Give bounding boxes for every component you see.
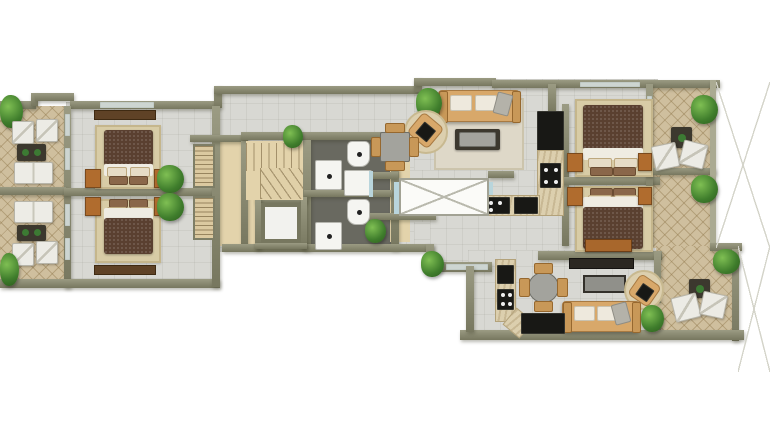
bed-bedroomC [583,105,643,177]
table-balcony-left-upper [17,144,46,161]
plant-balcony-right-2 [691,175,718,203]
stove-kitchen-bottom [497,289,514,310]
wall-closet-top [190,135,248,142]
pillow [590,167,613,176]
duvet [104,130,153,166]
oven-kitchen-bottom [497,265,514,284]
dining-chair [409,137,419,157]
stove-kitchen-top [540,163,561,188]
sofa-bottom [562,301,640,332]
wall-right-top-a [414,78,496,86]
sink-drain [327,174,332,179]
window-bedroomA [100,102,154,108]
fridge-kitchen-top [537,111,564,152]
burner [544,180,548,184]
bed-bedroomB [104,198,153,254]
plant-balcony-left-bottom [0,253,19,286]
sink-bath-top [315,160,342,190]
burner [544,168,548,172]
wall-kitchen-stub [548,84,556,114]
wall-bottom-apartment-left [466,266,474,332]
wall-left-bottom [0,279,220,288]
dining-chair [534,301,553,312]
plant-core [283,125,303,148]
nightstand [638,187,652,205]
plant-bath-corner [365,219,386,243]
nightstand [567,153,583,172]
sofa-cushion [450,95,472,111]
counter-kitchen-bottom-black [521,313,565,334]
chair-balcony-left [36,119,58,142]
burner [508,302,512,306]
burner [501,302,505,306]
duvet [583,105,643,150]
pillow [109,176,128,185]
sink-bath-bottom [315,222,342,250]
table-balcony-left-lower [17,225,46,241]
chair-balcony-right [699,291,728,320]
nightstand [638,153,652,171]
wall-core-top [214,86,420,94]
open-area-x-lower [738,246,770,372]
lounger-balcony-left [14,162,53,184]
duvet [104,218,153,254]
toilet-bath-bottom [347,199,370,225]
sofa-cushion [574,306,595,321]
sofa-living-top [438,90,520,122]
wall-shelf-bedroomB [94,265,156,275]
window-balcony-1 [65,114,70,136]
plant-bedroomB [157,193,184,221]
chair-balcony-left [12,121,34,144]
sofa-throw [611,301,632,325]
burner [554,168,558,172]
dining-set-top [371,123,419,171]
bed-bedroomA [104,130,153,186]
sofa-arm [632,302,641,333]
dining-chair [557,278,568,297]
appliance-kitchen-top [514,197,538,214]
elevator [261,203,301,243]
wardrobe-bedroomA [193,144,215,188]
light-well-void [399,178,489,216]
dining-chair [519,278,530,297]
tv-table-bottom [583,275,626,293]
burner [508,293,512,297]
dining-chair [371,137,381,157]
dining-chair [385,123,405,133]
lounger-balcony-left [14,201,53,223]
cup [34,229,41,236]
plant-south-corridor [421,251,444,277]
chair-balcony-right [651,142,681,172]
wall-shelf-bedroomA [94,110,156,120]
burner [489,208,493,212]
dining-chair [534,263,553,274]
wall-bedrooms-right-divider [550,177,660,185]
nightstand [567,187,583,206]
open-area-x-upper [716,82,770,248]
window-balcony-2 [65,148,70,170]
window-balcony-3 [65,204,70,226]
shower-bath-top [344,170,372,196]
nightstand [85,197,101,216]
sink-drain [327,234,332,239]
pillow [129,176,148,185]
dining-table-round [528,272,559,303]
cup [34,149,41,156]
window-balcony-4 [65,238,70,260]
stairs-winder [260,168,303,199]
hallway-floor [216,141,244,246]
plant-balcony-right-1 [691,95,718,124]
toilet-lid-dot [357,210,362,215]
burner [554,180,558,184]
shower-glass [369,171,373,197]
cup [22,149,29,156]
cup [22,229,29,236]
window-top-right [580,82,640,87]
wall-balcony-left-divider [0,187,66,195]
coffee-table-top [455,129,500,150]
wall-lift-bottom [255,243,307,249]
chair-balcony-left [36,241,58,264]
nightstand [85,169,101,188]
dining-set-bottom [519,263,568,312]
plant-sofa-bottom [641,305,664,332]
plant-bedroomA [157,165,184,193]
wardrobe-bedroomB [193,196,215,240]
dining-table [380,132,410,162]
armchair-cushion [635,283,654,302]
toilet-lid-dot [357,152,362,157]
wall-corridor-top-b [488,171,514,178]
toilet-bath-top [347,141,370,167]
dresser-bedroomD [585,239,632,252]
burner [501,293,505,297]
floor-plan-canvas [0,0,770,430]
wall-bedrooms-divider [64,188,216,196]
plant-balcony-right-3 [713,249,740,274]
burner [489,201,493,205]
dining-chair [385,161,405,171]
burner [498,201,502,205]
wall-lift-right [301,197,307,249]
media-console-bottom [569,258,634,269]
wall-top-left-b [35,93,74,101]
coffee-table-top-slab [459,132,496,147]
pillow [613,167,636,176]
